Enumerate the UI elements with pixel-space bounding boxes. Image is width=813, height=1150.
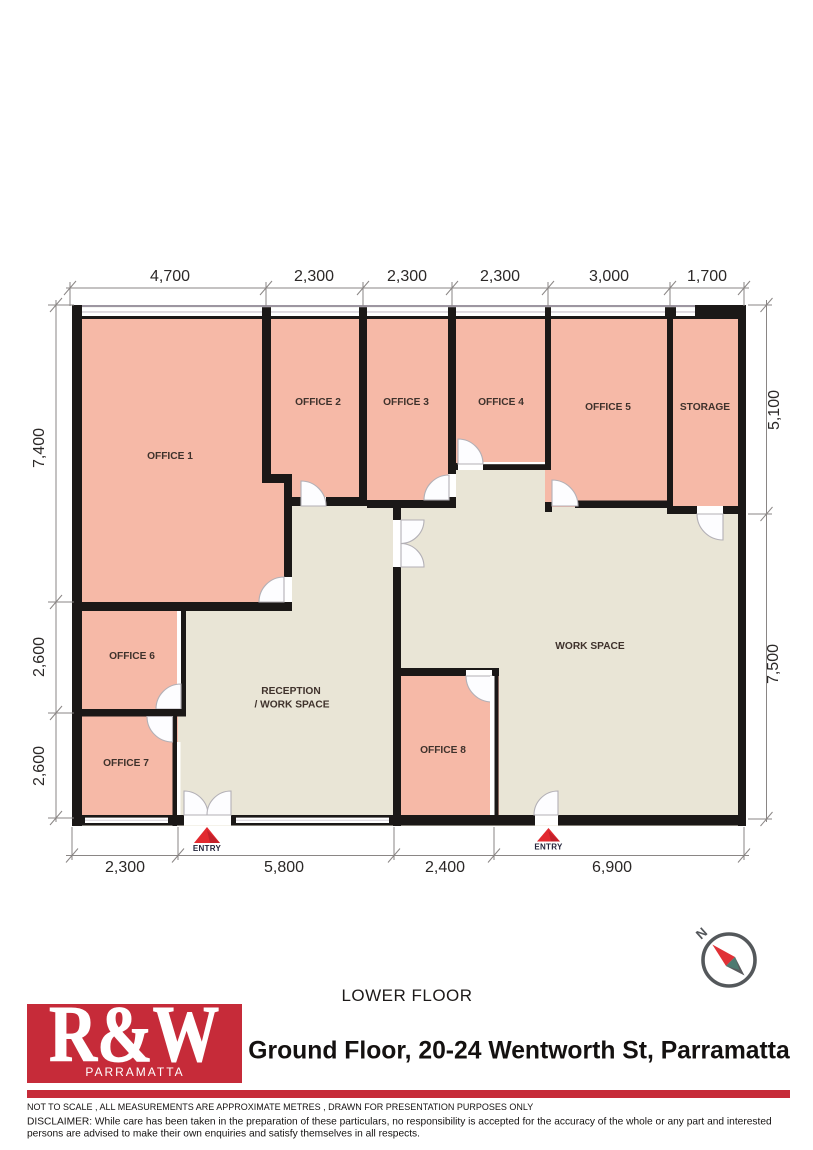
svg-text:4,700: 4,700: [150, 268, 190, 285]
svg-text:OFFICE 3: OFFICE 3: [383, 397, 429, 408]
svg-text:OFFICE 8: OFFICE 8: [420, 745, 466, 756]
svg-text:2,600: 2,600: [31, 637, 48, 677]
svg-text:ENTRY: ENTRY: [534, 843, 563, 852]
svg-text:OFFICE 6: OFFICE 6: [109, 651, 155, 662]
svg-text:RECEPTION: RECEPTION: [261, 686, 320, 697]
svg-text:7,400: 7,400: [31, 428, 48, 468]
svg-text:OFFICE 7: OFFICE 7: [103, 758, 149, 769]
svg-text:Ground Floor, 20-24 Wentworth: Ground Floor, 20-24 Wentworth St, Parram…: [248, 1038, 790, 1065]
svg-text:OFFICE 1: OFFICE 1: [147, 451, 193, 462]
svg-text:STORAGE: STORAGE: [680, 402, 730, 413]
svg-text:LOWER FLOOR: LOWER FLOOR: [341, 986, 472, 1005]
svg-text:OFFICE 2: OFFICE 2: [295, 397, 341, 408]
svg-text:persons are advised to make th: persons are advised to make their own en…: [27, 1129, 420, 1140]
svg-text:DISCLAIMER: While care has be: DISCLAIMER: While care has been taken in…: [27, 1117, 772, 1128]
svg-text:2,400: 2,400: [425, 859, 465, 876]
svg-text:5,800: 5,800: [264, 859, 304, 876]
svg-text:2,300: 2,300: [105, 859, 145, 876]
svg-text:2,300: 2,300: [294, 268, 334, 285]
svg-text:6,900: 6,900: [592, 859, 632, 876]
svg-text:PARRAMATTA: PARRAMATTA: [85, 1065, 184, 1079]
svg-text:2,300: 2,300: [480, 268, 520, 285]
svg-text:OFFICE 4: OFFICE 4: [478, 397, 524, 408]
svg-text:2,600: 2,600: [31, 746, 48, 786]
svg-text:NOT TO SCALE , ALL MEASUREMENT: NOT TO SCALE , ALL MEASUREMENTS ARE APPR…: [27, 1102, 533, 1112]
svg-text:OFFICE 5: OFFICE 5: [585, 402, 631, 413]
svg-text:1,700: 1,700: [687, 268, 727, 285]
svg-text:5,100: 5,100: [766, 390, 783, 430]
svg-text:WORK SPACE: WORK SPACE: [555, 641, 625, 652]
svg-text:ENTRY: ENTRY: [193, 844, 222, 853]
svg-text:2,300: 2,300: [387, 268, 427, 285]
svg-text:3,000: 3,000: [589, 268, 629, 285]
svg-text:7,500: 7,500: [765, 644, 782, 684]
svg-text:/ WORK SPACE: / WORK SPACE: [254, 700, 329, 711]
